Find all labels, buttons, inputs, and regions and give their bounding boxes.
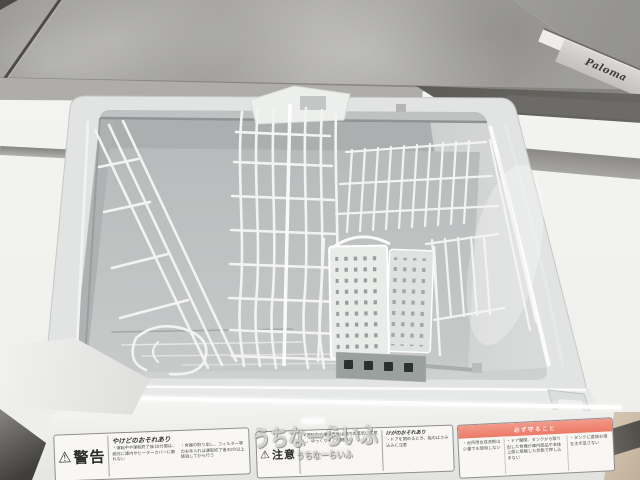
caution-sub-body: けがのおそれあり ・ドアを閉めるとき、指のはさみ込みに注意 <box>386 428 451 471</box>
caution-sub-bullet: ・ドアを閉めるとき、指のはさみ込みに注意 <box>386 435 451 471</box>
warning-bullet-1: ・運転中や運転終了後30分間は、絶対に庫内やヒーターカバーに触れない <box>112 443 178 476</box>
notice-bullet-3: ・タンクに直接お湯を注ぎ足さない <box>567 433 613 470</box>
watermark-small: うちなーらいふ <box>296 446 353 462</box>
label-divider <box>108 436 111 477</box>
cutlery-basket <box>318 237 440 362</box>
warning-heading: 警告 <box>73 446 106 468</box>
notice-bullet-1: ・台所用合成洗剤は少量でも使用しない <box>461 439 506 476</box>
warning-label: ⚠ 警告 やけどのおそれあり ・運転中や運転終了後30分間は、絶対に庫内やヒータ… <box>53 427 251 480</box>
kitchen-dishwasher-photo: Paloma <box>0 0 640 480</box>
warning-sign: ⚠ 警告 <box>57 436 106 479</box>
label-divider <box>382 430 384 471</box>
warning-bullet-2: ・食器の取り出し、フィルター等のお手入れは運転終了後30分以上経過してから行う <box>180 440 246 473</box>
notice-bullet-2: ・ドア開閉、タンクから取り出した食器が庫内部品や本体上部に接触した状態で押し込ま… <box>503 435 568 473</box>
tub-interior <box>72 110 563 380</box>
warning-body: やけどのおそれあり ・運転中や運転終了後30分間は、絶対に庫内やヒーターカバーに… <box>112 430 247 476</box>
notice-label: 必ず守ること ・台所用合成洗剤は少量でも使用しない ・ドア開閉、タンクから取り出… <box>457 417 615 479</box>
notice-body: ・台所用合成洗剤は少量でも使用しない ・ドア開閉、タンクから取り出した食器が庫内… <box>458 431 614 477</box>
notice-header: 必ず守ること <box>514 424 556 434</box>
warning-triangle-icon: ⚠ <box>58 450 72 466</box>
